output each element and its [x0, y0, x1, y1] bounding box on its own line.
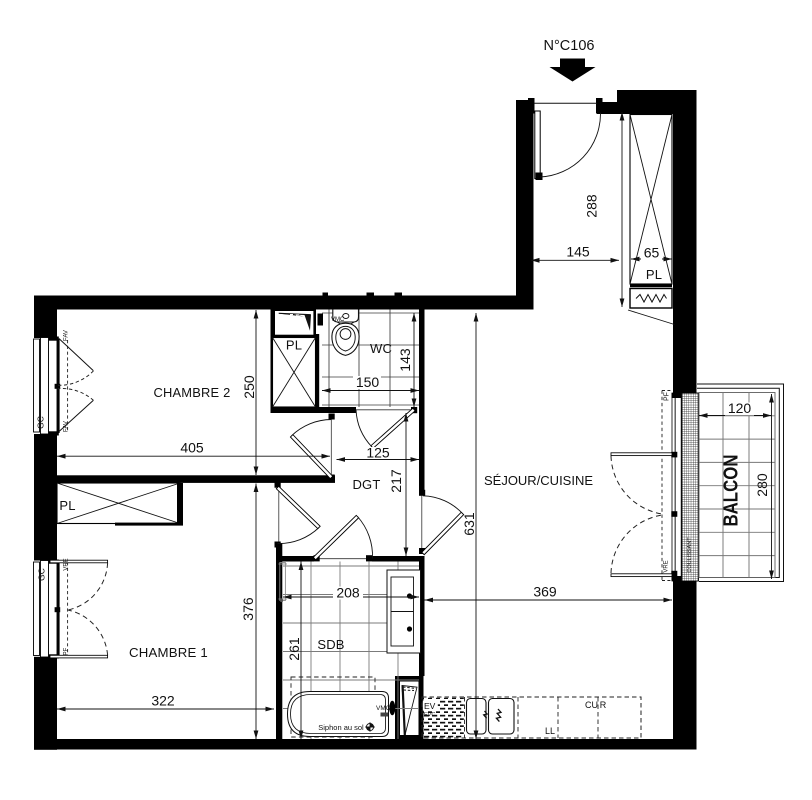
- svg-text:VMC: VMC: [331, 317, 345, 323]
- svg-text:BALCON: BALCON: [721, 455, 743, 527]
- svg-text:VRE: VRE: [64, 558, 70, 570]
- svg-text:WC: WC: [370, 341, 392, 356]
- svg-text:369: 369: [533, 584, 557, 600]
- svg-text:R: R: [600, 700, 607, 710]
- svg-text:143: 143: [397, 348, 413, 372]
- svg-text:145: 145: [566, 244, 590, 260]
- svg-text:376: 376: [240, 597, 256, 621]
- svg-text:FAV: FAV: [64, 421, 70, 432]
- svg-text:EVC: EVC: [424, 712, 435, 718]
- svg-text:PF: PF: [664, 392, 671, 401]
- svg-text:DGT: DGT: [352, 477, 380, 492]
- svg-text:405: 405: [180, 440, 204, 456]
- svg-text:EV: EV: [424, 701, 436, 711]
- svg-text:VRE: VRE: [664, 560, 670, 572]
- svg-text:PL: PL: [59, 498, 75, 513]
- svg-text:280: 280: [754, 473, 770, 497]
- svg-text:PL: PL: [286, 338, 302, 353]
- svg-text:CU: CU: [585, 700, 598, 710]
- svg-text:FAV: FAV: [64, 330, 70, 341]
- svg-text:250: 250: [241, 375, 257, 399]
- svg-text:SDB: SDB: [317, 637, 344, 652]
- svg-text:COULISSANT: COULISSANT: [687, 537, 693, 573]
- svg-text:288: 288: [584, 194, 600, 218]
- svg-text:217: 217: [388, 469, 404, 493]
- svg-text:Siphon au sol: Siphon au sol: [318, 723, 364, 732]
- svg-text:261: 261: [286, 637, 302, 661]
- svg-text:LL: LL: [545, 726, 555, 736]
- svg-text:N°C106: N°C106: [544, 38, 595, 54]
- svg-text:VMC: VMC: [376, 705, 391, 712]
- svg-text:208: 208: [336, 585, 360, 601]
- svg-text:PL: PL: [646, 267, 662, 282]
- svg-text:150: 150: [356, 374, 380, 390]
- svg-text:GC: GC: [37, 568, 47, 581]
- svg-text:CHAMBRE 2: CHAMBRE 2: [154, 385, 231, 400]
- svg-text:125: 125: [366, 445, 390, 461]
- svg-text:65: 65: [644, 245, 660, 261]
- svg-text:120: 120: [728, 400, 752, 416]
- svg-text:GC: GC: [36, 416, 46, 429]
- svg-text:631: 631: [461, 512, 477, 536]
- svg-text:PF: PF: [64, 647, 70, 655]
- svg-text:322: 322: [151, 693, 175, 709]
- svg-text:SÉJOUR/CUISINE: SÉJOUR/CUISINE: [484, 473, 593, 488]
- svg-text:CHAMBRE 1: CHAMBRE 1: [129, 645, 208, 660]
